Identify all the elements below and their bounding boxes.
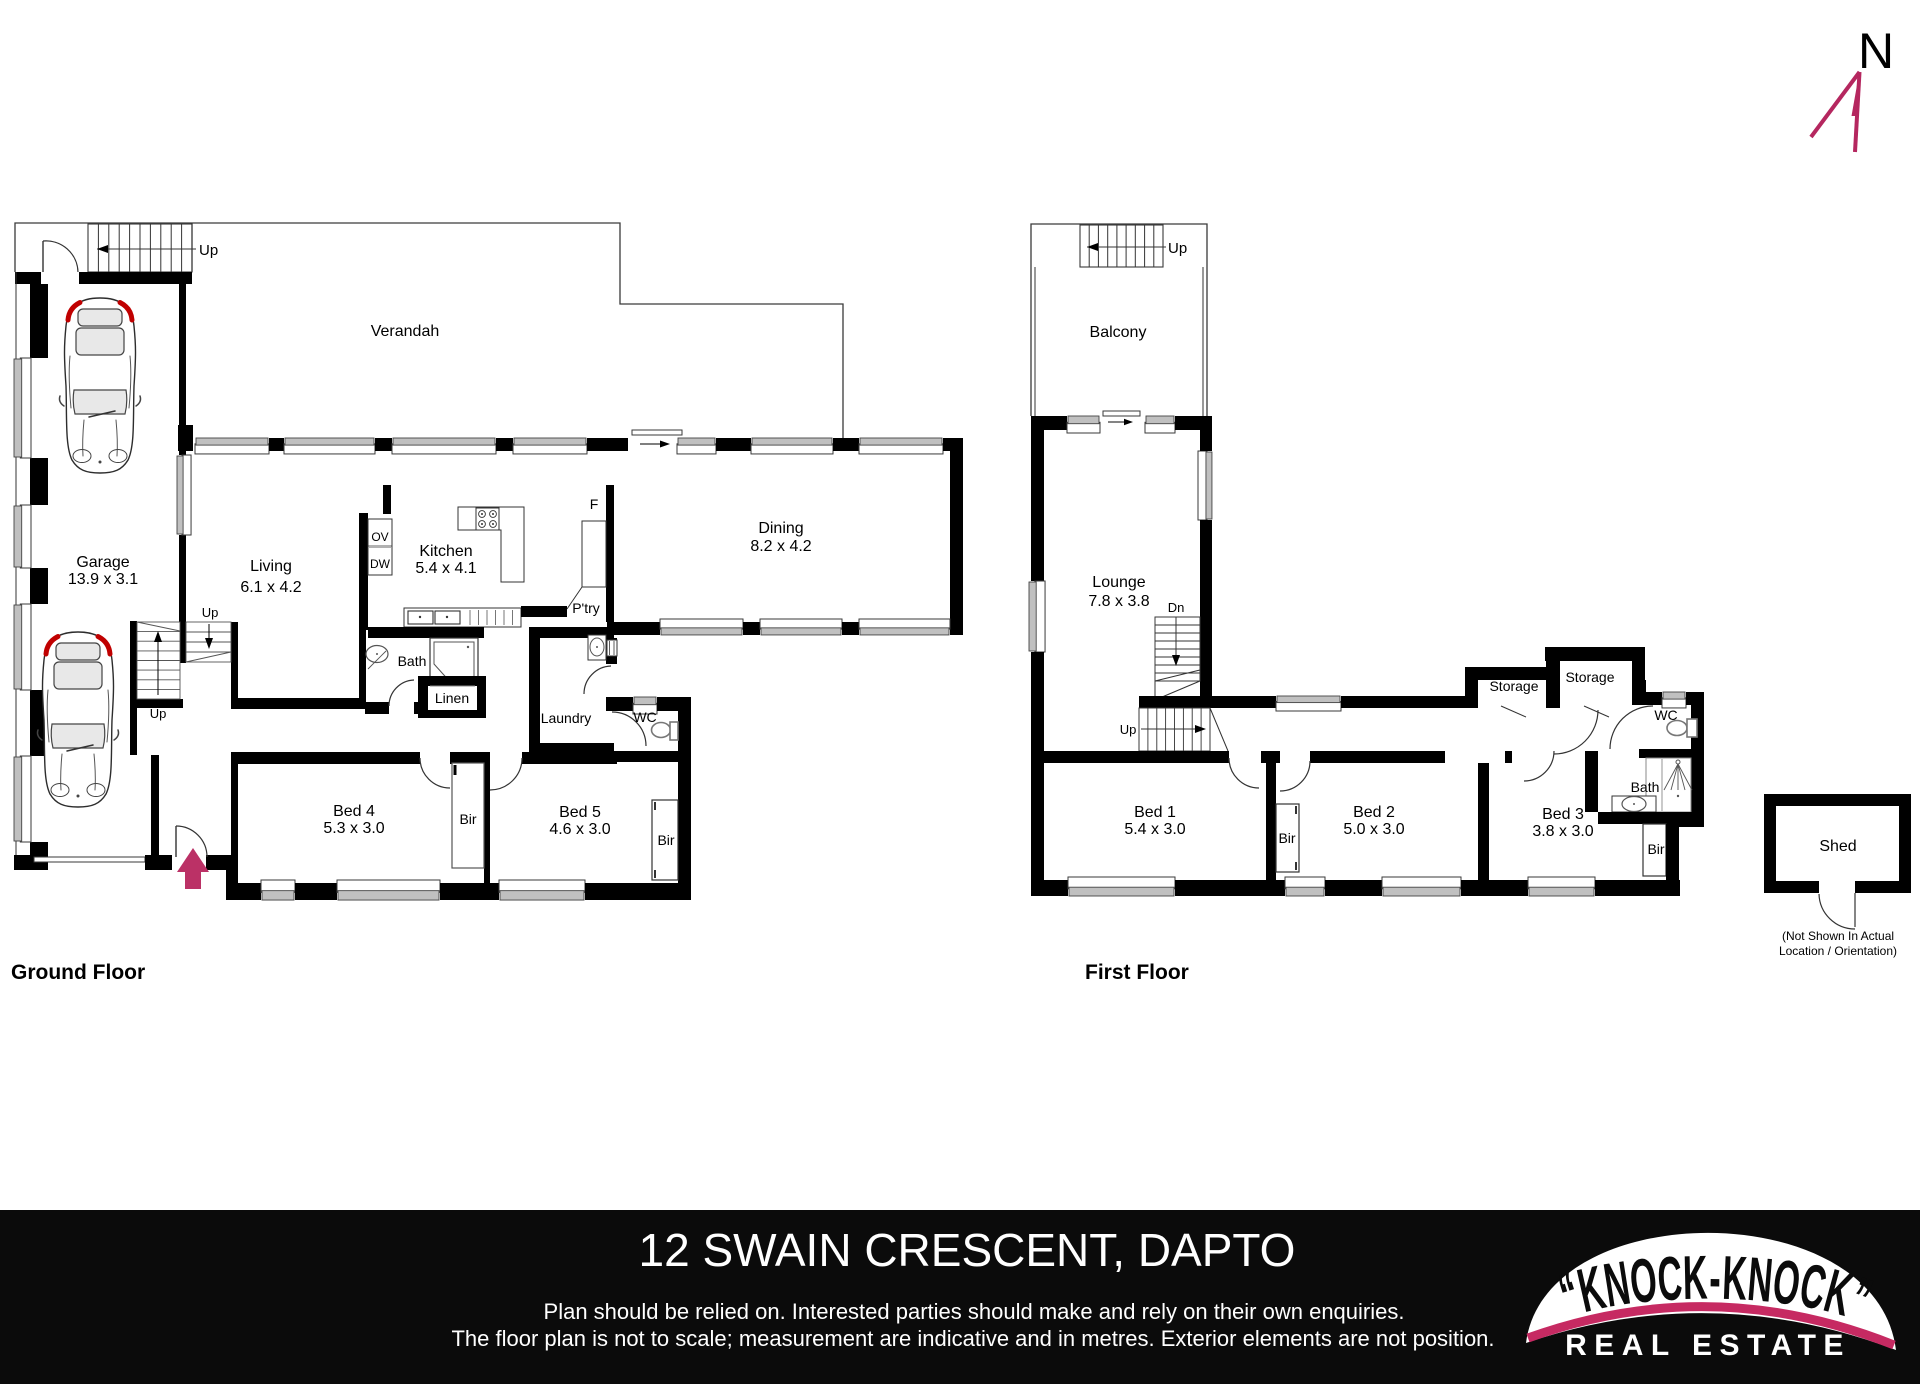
svg-text:The floor plan is not to scale: The floor plan is not to scale; measurem… bbox=[451, 1326, 1494, 1351]
svg-text:Storage: Storage bbox=[1489, 678, 1538, 694]
svg-text:13.9 x 3.1: 13.9 x 3.1 bbox=[68, 571, 138, 588]
svg-text:Storage: Storage bbox=[1565, 669, 1614, 685]
svg-text:F: F bbox=[590, 496, 599, 512]
svg-text:5.4 x 4.1: 5.4 x 4.1 bbox=[415, 560, 476, 577]
svg-text:Plan should be relied on. Inte: Plan should be relied on. Interested par… bbox=[544, 1299, 1405, 1324]
svg-text:K: K bbox=[1682, 1243, 1708, 1313]
svg-text:Bed 1: Bed 1 bbox=[1134, 804, 1176, 821]
svg-text:Bed 3: Bed 3 bbox=[1542, 806, 1584, 823]
svg-text:K: K bbox=[1721, 1243, 1748, 1313]
svg-text:Bed 5: Bed 5 bbox=[559, 804, 601, 821]
svg-text:5.0 x 3.0: 5.0 x 3.0 bbox=[1343, 821, 1404, 838]
svg-text:7.8 x 3.8: 7.8 x 3.8 bbox=[1088, 593, 1149, 610]
svg-text:Linen: Linen bbox=[435, 690, 469, 706]
svg-text:6.1 x 4.2: 6.1 x 4.2 bbox=[240, 579, 301, 596]
svg-text:WC: WC bbox=[1654, 707, 1677, 723]
svg-text:Ground Floor: Ground Floor bbox=[11, 961, 145, 984]
svg-text:First Floor: First Floor bbox=[1085, 961, 1189, 984]
svg-text:4.6 x 3.0: 4.6 x 3.0 bbox=[549, 821, 610, 838]
svg-text:Bath: Bath bbox=[1631, 779, 1660, 795]
svg-text:WC: WC bbox=[633, 709, 656, 725]
svg-text:P'try: P'try bbox=[572, 600, 600, 616]
svg-text:Lounge: Lounge bbox=[1092, 574, 1145, 591]
svg-text:-: - bbox=[1709, 1243, 1721, 1313]
svg-text:C: C bbox=[1656, 1243, 1685, 1314]
svg-text:Laundry: Laundry bbox=[541, 710, 592, 726]
svg-text:Location / Orientation): Location / Orientation) bbox=[1779, 944, 1897, 958]
svg-text:Bir: Bir bbox=[657, 832, 674, 848]
svg-text:Shed: Shed bbox=[1819, 838, 1856, 855]
svg-text:Bath: Bath bbox=[398, 653, 427, 669]
svg-text:Kitchen: Kitchen bbox=[419, 543, 472, 560]
svg-text:Verandah: Verandah bbox=[371, 323, 440, 340]
svg-text:3.8 x 3.0: 3.8 x 3.0 bbox=[1532, 823, 1593, 840]
svg-text:Balcony: Balcony bbox=[1090, 324, 1147, 341]
svg-text:Dn: Dn bbox=[1168, 600, 1185, 615]
svg-text:Bir: Bir bbox=[1278, 830, 1295, 846]
svg-text:Bir: Bir bbox=[459, 811, 476, 827]
svg-text:N: N bbox=[1858, 23, 1894, 79]
svg-text:Up: Up bbox=[199, 242, 218, 259]
svg-text:Garage: Garage bbox=[76, 554, 129, 571]
svg-text:Up: Up bbox=[1168, 240, 1187, 257]
svg-text:OV: OV bbox=[371, 530, 388, 544]
svg-text:5.4 x 3.0: 5.4 x 3.0 bbox=[1124, 821, 1185, 838]
svg-text:Bed 2: Bed 2 bbox=[1353, 804, 1395, 821]
svg-text:Up: Up bbox=[202, 605, 219, 620]
svg-text:12 SWAIN CRESCENT, DAPTO: 12 SWAIN CRESCENT, DAPTO bbox=[639, 1224, 1296, 1276]
svg-text:5.3 x 3.0: 5.3 x 3.0 bbox=[323, 820, 384, 837]
svg-text:(Not Shown In Actual: (Not Shown In Actual bbox=[1782, 929, 1894, 943]
svg-text:Dining: Dining bbox=[758, 520, 803, 537]
svg-text:Bir: Bir bbox=[1647, 841, 1664, 857]
svg-text:Bed 4: Bed 4 bbox=[333, 803, 375, 820]
svg-text:DW: DW bbox=[370, 557, 391, 571]
svg-text:Up: Up bbox=[150, 706, 167, 721]
svg-text:REAL ESTATE: REAL ESTATE bbox=[1565, 1329, 1851, 1362]
svg-text:Up: Up bbox=[1120, 722, 1137, 737]
svg-text:8.2 x 4.2: 8.2 x 4.2 bbox=[750, 538, 811, 555]
svg-text:Living: Living bbox=[250, 558, 292, 575]
